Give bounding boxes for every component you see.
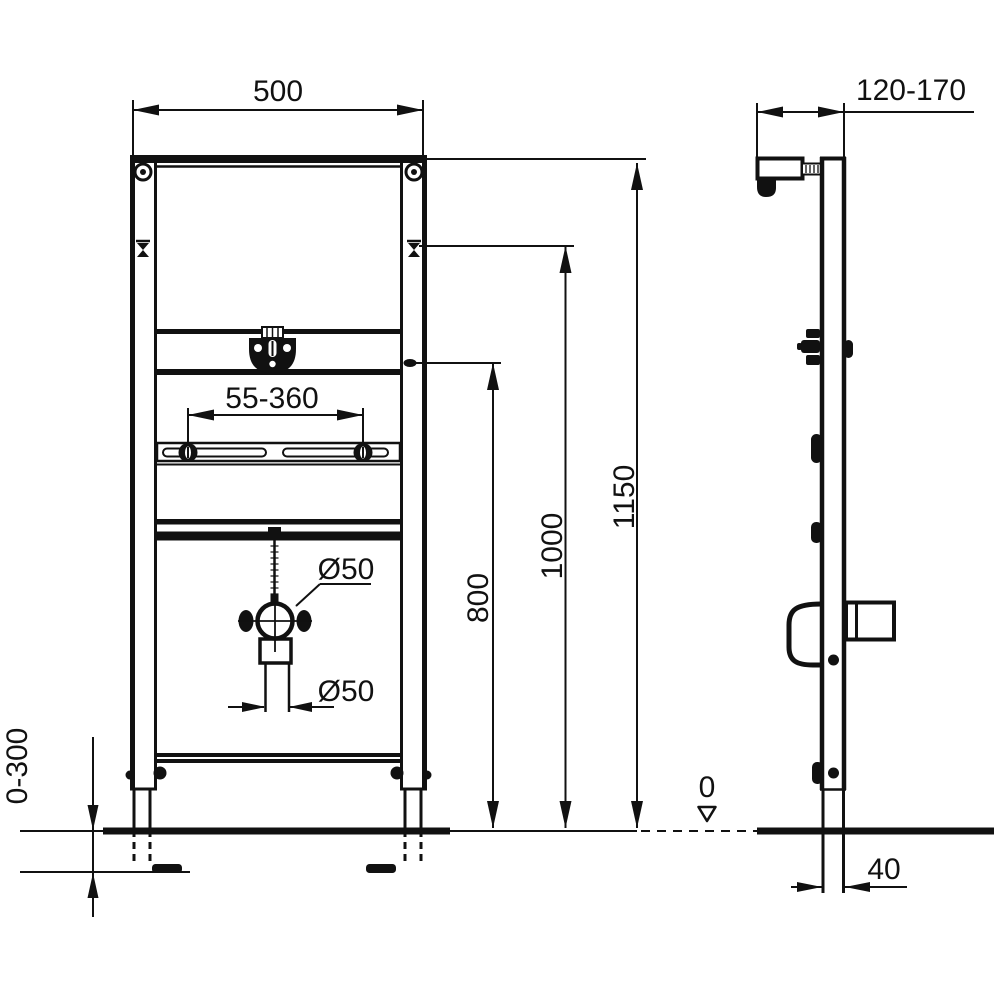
side-bolt-dot: [828, 655, 839, 666]
anchor-clip-icon: [407, 241, 421, 257]
anchor-clip-icon: [136, 241, 150, 257]
side-waste-trap: [789, 604, 821, 665]
width-dimension-label: 500: [253, 75, 303, 108]
wall-bracket: [757, 159, 821, 198]
dimension-pipe-diameter: Ø50: [228, 675, 374, 712]
height-tap-label: 800: [462, 573, 495, 623]
front-view: [126, 155, 432, 873]
side-foot-clamp: [812, 762, 823, 784]
threaded-rod: [268, 527, 281, 604]
frame-left-upright: [130, 155, 157, 789]
side-view: 120-170: [699, 74, 975, 893]
rail-range-dimension-label: 55-360: [225, 382, 318, 415]
height-inlet-label: 1000: [536, 513, 569, 580]
dimension-width-500: 500: [133, 75, 423, 157]
wall-outlet: [846, 603, 894, 640]
dimension-height-1150: 1150: [427, 159, 646, 828]
dimension-foot-adjustment: 0-300: [1, 728, 99, 917]
pipe-diameter-label: Ø50: [318, 675, 375, 708]
dimension-clamp-diameter: Ø50: [294, 553, 374, 608]
side-rail-bolt: [811, 434, 822, 463]
side-rail-bolt: [811, 522, 822, 543]
floor-level-label: 0: [699, 771, 716, 804]
corner-bolt-icon: [406, 164, 422, 180]
foot-adjustment-label: 0-300: [1, 728, 34, 805]
clamp-diameter-label: Ø50: [318, 553, 375, 586]
floor-level-marker: 0: [699, 771, 716, 821]
dimension-height-800: 800: [404, 359, 502, 828]
frame-right-upright: [400, 155, 427, 789]
dimension-height-1000: 1000: [419, 246, 574, 828]
side-bolt-dot: [828, 768, 839, 779]
dimension-depth-range: 120-170: [757, 74, 974, 160]
side-frame-profile: [820, 157, 846, 790]
side-foot: [820, 790, 846, 894]
depth-range-label: 120-170: [856, 74, 966, 107]
dimension-rail-range: 55-360: [188, 382, 363, 443]
bottom-crossrail: [126, 753, 432, 780]
dimension-foot-offset: 40: [791, 853, 907, 892]
foot-offset-label: 40: [867, 853, 900, 886]
installation-frame-drawing: 500 55-360 Ø50 Ø50: [0, 0, 1000, 1000]
waste-pipe-clamp: [238, 596, 312, 652]
height-total-label: 1150: [608, 465, 641, 530]
slotted-mounting-rail: [157, 443, 400, 465]
frame-top-rail: [130, 155, 427, 167]
technical-drawing-page: 500 55-360 Ø50 Ø50: [0, 0, 1000, 1000]
corner-bolt-icon: [135, 164, 151, 180]
